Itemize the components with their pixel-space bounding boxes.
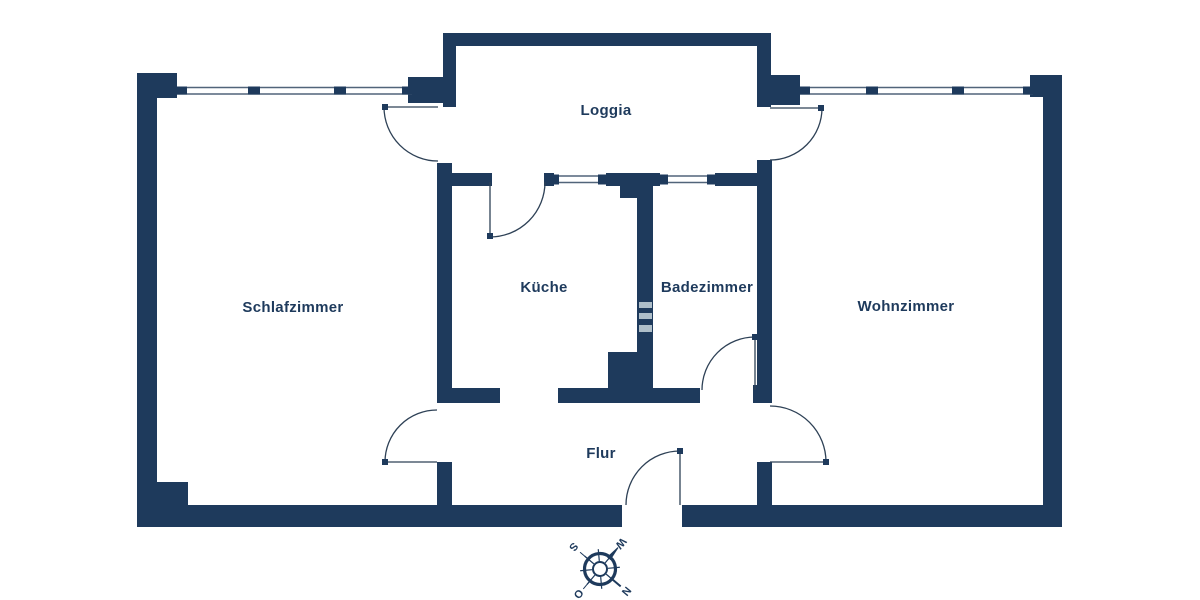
floorplan-svg: Loggia Schlafzimmer Küche Badezimmer Woh…	[0, 0, 1200, 600]
wall-loggia-top	[443, 33, 771, 46]
room-label-loggia: Loggia	[581, 102, 632, 119]
compass-letter-north: N	[619, 584, 633, 598]
wall-wohnzimmer-partition-nub	[753, 385, 772, 403]
room-label-badezimmer: Badezimmer	[661, 279, 753, 296]
wall-between-windows	[606, 173, 660, 186]
door-flur-wohnzimmer	[770, 406, 829, 465]
room-label-flur: Flur	[586, 445, 616, 462]
compass-letter-west: W	[612, 535, 628, 551]
vent-mark	[639, 313, 652, 319]
wall-wohnzimmer-partition-upper	[757, 160, 772, 403]
door-flur-schlafzimmer	[382, 410, 437, 465]
wall-kueche-top-left	[448, 173, 492, 186]
wall-kueche-bottom-left	[448, 388, 500, 403]
wall-chimney-block	[620, 184, 650, 198]
compass-letter-south: S	[566, 540, 580, 553]
door-loggia-kueche	[487, 182, 545, 239]
room-label-wohnzimmer: Wohnzimmer	[858, 298, 955, 315]
room-label-kueche: Küche	[520, 279, 567, 296]
wall-loggia-right	[757, 33, 771, 107]
wall-kueche-bad-bottom	[558, 388, 700, 403]
wall-left	[137, 73, 157, 527]
wall-bad-top-right	[715, 173, 762, 186]
wall-bottom-right-of-entrance	[682, 505, 1062, 527]
wall-corner-top-right	[1030, 75, 1062, 97]
compass-inner-ring	[590, 559, 610, 579]
wall-bottom-left-of-entrance	[137, 505, 622, 527]
room-label-schlafzimmer: Schlafzimmer	[242, 299, 343, 316]
wall-schlafzimmer-partition-lower	[437, 462, 452, 507]
wall-kueche-solid-block	[608, 352, 640, 390]
wall-notch-bottom-left	[157, 482, 188, 505]
floorplan-canvas: Loggia Schlafzimmer Küche Badezimmer Woh…	[0, 0, 1200, 600]
window-schlafzimmer	[177, 87, 412, 95]
door-loggia-wohnzimmer	[770, 105, 824, 160]
door-schlafzimmer-loggia	[382, 104, 438, 161]
window-wohnzimmer	[800, 87, 1033, 95]
compass-west-arrow	[608, 546, 620, 559]
window-kueche	[551, 175, 606, 185]
window-badezimmer	[660, 175, 715, 185]
room-labels: Loggia Schlafzimmer Küche Badezimmer Woh…	[242, 102, 954, 462]
vent-shaft-marks	[639, 302, 652, 332]
door-flur-badezimmer	[702, 334, 758, 390]
door-entrance	[626, 448, 683, 505]
compass-outer-ring	[578, 547, 622, 591]
vent-mark	[639, 302, 652, 308]
wall-loggia-left	[443, 33, 456, 107]
wall-wohnzimmer-partition-lower	[757, 462, 772, 507]
vent-mark	[639, 325, 652, 332]
wall-right	[1043, 75, 1062, 527]
wall-schlafzimmer-partition-upper	[437, 163, 452, 403]
